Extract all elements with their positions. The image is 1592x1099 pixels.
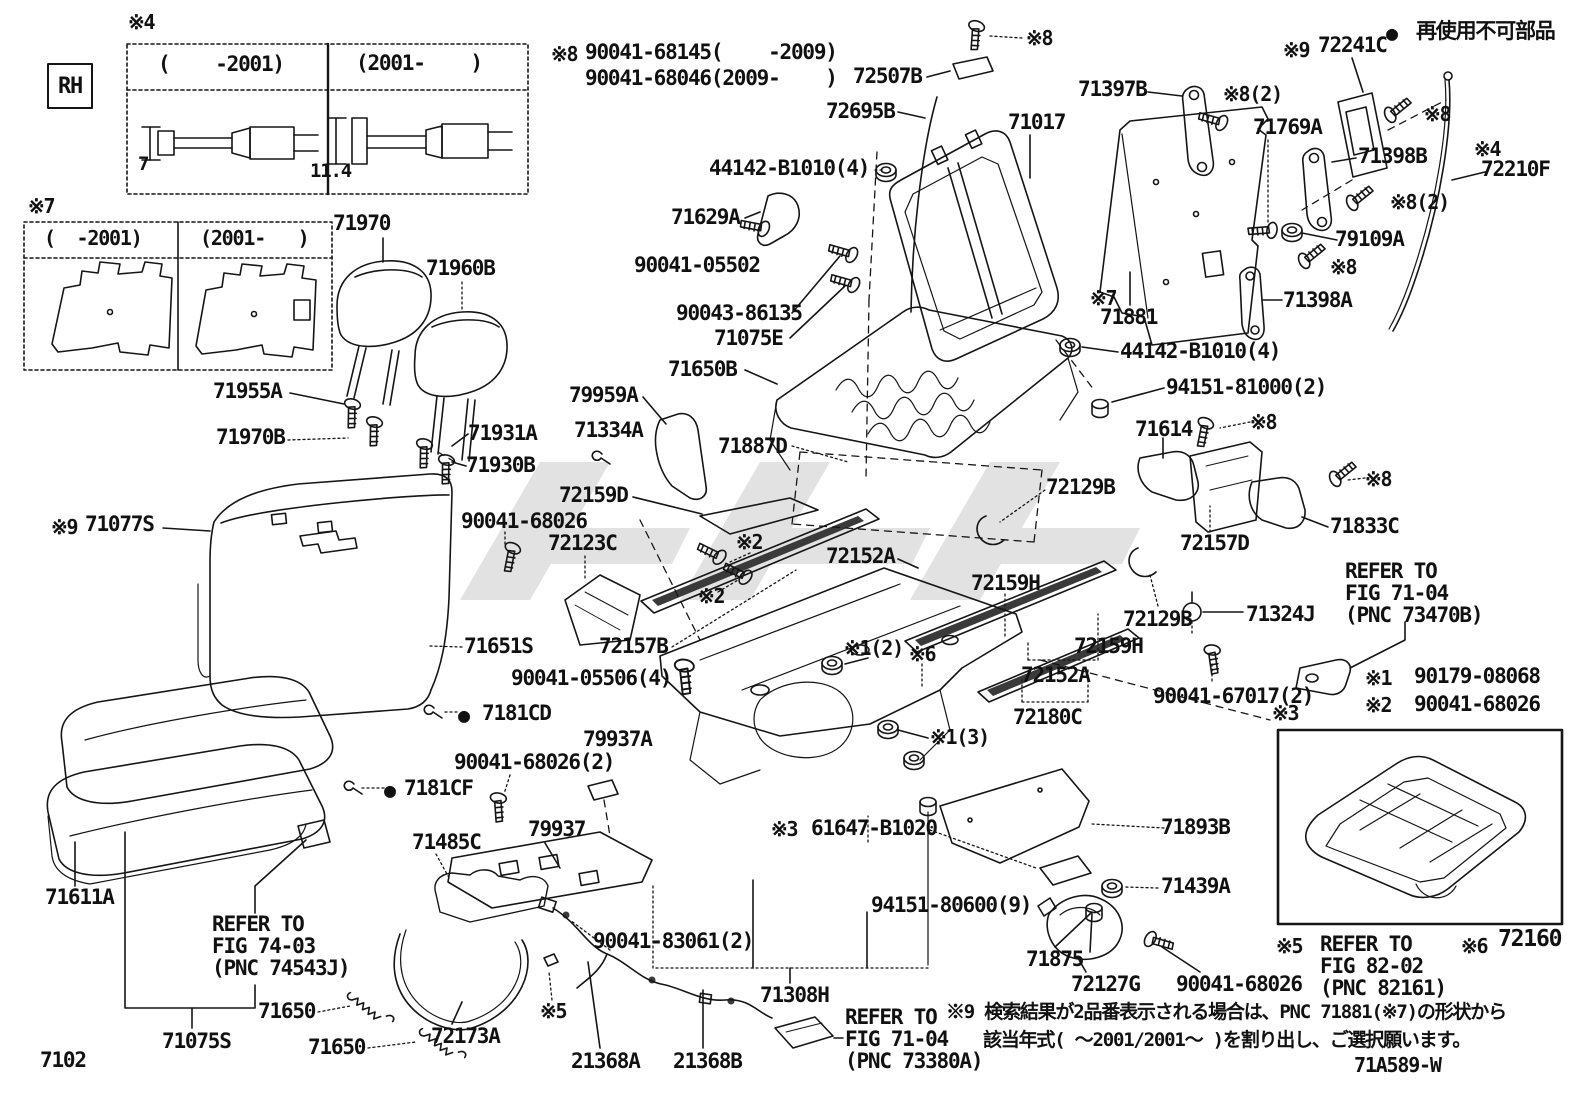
part-label: 90041-83061(2) (593, 931, 753, 952)
part-label: 71887D (718, 436, 787, 457)
part-label: 90041-68026 (1414, 694, 1540, 715)
part-label: RH (58, 76, 82, 98)
part-label: 71334A (574, 420, 643, 441)
part-label: 44142-B1010(4) (709, 158, 869, 179)
part-label: 71439A (1161, 876, 1230, 897)
part-label: ※5 (540, 1001, 566, 1021)
part-label: 71485C (412, 832, 481, 853)
part-label: 79937 (528, 819, 585, 840)
part-label: REFER TO (1345, 561, 1437, 582)
part-label: 71611A (45, 887, 114, 908)
part-label: ● (1386, 23, 1397, 43)
part-label: 71A589-W (1354, 1055, 1441, 1075)
part-label: 72241C (1318, 35, 1387, 56)
part-label: 71650 (308, 1037, 365, 1058)
part-label: 71930B (466, 455, 535, 476)
part-label: FIG 82-02 (1320, 956, 1423, 977)
part-label: ※8 (1424, 104, 1450, 124)
part-label: ※8 (1250, 412, 1276, 432)
part-label: ※6 (909, 644, 935, 664)
part-label: 90041-68026 (1176, 974, 1302, 995)
part-label: 21368B (673, 1051, 742, 1072)
part-label: 79109A (1335, 229, 1404, 250)
part-label: 7102 (40, 1050, 86, 1071)
part-label: 71324J (1246, 604, 1315, 625)
part-label: 71955A (213, 381, 282, 402)
part-label: 7181CF (404, 778, 473, 799)
part-label: ※2 (736, 532, 762, 552)
part-label: (PNC 74543J) (212, 958, 349, 979)
part-label: ● (384, 780, 395, 800)
part-label: ※6 (1461, 936, 1487, 956)
part-label: (PNC 73470B) (1345, 605, 1482, 626)
part-label: (PNC 82161) (1320, 978, 1446, 999)
part-label: 72507B (853, 66, 922, 87)
part-label: 71077S (85, 514, 154, 535)
part-label: 71769A (1253, 117, 1322, 138)
part-label: ※8 (551, 44, 577, 64)
part-label: ※8 (1365, 469, 1391, 489)
part-label: 72127G (1071, 974, 1140, 995)
part-label: ※5 (1276, 936, 1302, 956)
part-label: REFER TO (212, 914, 304, 935)
part-label: (2001- ) (200, 228, 308, 248)
part-label: 90041-68026(2) (454, 752, 614, 773)
part-label: 再使用不可部品 (1416, 21, 1555, 42)
part-label: 61647-B1020 (811, 818, 937, 839)
part-label: ( -2001) (158, 54, 284, 75)
part-label: 71881 (1100, 307, 1157, 328)
part-label: 72157B (599, 636, 668, 657)
part-label: 71893B (1161, 817, 1230, 838)
part-label: 71970B (216, 427, 285, 448)
part-label: (2001- ) (356, 53, 482, 74)
part-label: 71960B (426, 258, 495, 279)
part-label: 90179-08068 (1414, 666, 1540, 687)
part-label: REFER TO (1320, 934, 1412, 955)
part-label: ※1 (1365, 668, 1391, 688)
part-label: 71651S (464, 636, 533, 657)
part-label: REFER TO (845, 1007, 937, 1028)
part-label: ( -2001) (44, 228, 142, 248)
part-label: 72152A (826, 546, 895, 567)
part-label: 72180C (1013, 707, 1082, 728)
part-label: 71017 (1008, 112, 1065, 133)
part-label: 90043-86135 (676, 303, 802, 324)
part-label: 72160 (1498, 928, 1561, 951)
part-label: ※3 (771, 819, 797, 839)
part-label: 該当年式( ～2001/2001～ )を割り出し、ご選択願います。 (983, 1031, 1470, 1050)
part-label: 71833C (1330, 516, 1399, 537)
part-label: 71614 (1135, 419, 1192, 440)
part-label: 72129B (1123, 609, 1192, 630)
part-label: 71398B (1358, 146, 1427, 167)
part-label: 7 (138, 155, 148, 174)
part-label: 71970 (333, 213, 390, 234)
part-label: 21368A (571, 1051, 640, 1072)
part-label: 79959A (569, 385, 638, 406)
part-label: 79937A (583, 729, 652, 750)
part-label: ※7 (28, 196, 54, 216)
part-label: 7181CD (482, 703, 551, 724)
part-label: 71398A (1283, 290, 1352, 311)
part-label: ※8(2) (1223, 84, 1282, 104)
part-label: 90041-05506(4) (511, 668, 671, 689)
part-label: ※9 (51, 517, 77, 537)
part-label: ※8 (1026, 28, 1052, 48)
part-labels-layer: ※4RH( -2001)(2001- )711.4※7( -2001)(2001… (0, 0, 1592, 1099)
part-label: 90041-05502 (634, 255, 760, 276)
part-label: (PNC 73380A) (845, 1051, 982, 1072)
part-label: 72129B (1046, 477, 1115, 498)
part-label: FIG 74-03 (212, 936, 315, 957)
part-label: 90041-68026 (461, 511, 587, 532)
part-label: 71308H (760, 985, 829, 1006)
part-label: 71397B (1078, 79, 1147, 100)
part-label: 71629A (671, 207, 740, 228)
part-label: 72159H (971, 573, 1040, 594)
part-label: ※4 (1474, 139, 1500, 159)
part-label: 71875 (1026, 949, 1083, 970)
part-label: 71931A (468, 423, 537, 444)
part-label: ※3 (1272, 703, 1298, 723)
part-label: 71650B (668, 359, 737, 380)
part-label: 90041-68046(2009- ) (585, 68, 837, 89)
part-label: 72157D (1180, 533, 1249, 554)
part-label: 90041-68145( -2009) (585, 42, 837, 63)
part-label: 72210F (1481, 159, 1550, 180)
part-label: ※4 (128, 12, 154, 32)
part-label: 72173A (431, 1026, 500, 1047)
part-label: 71075E (714, 328, 783, 349)
part-label: 72159D (559, 485, 628, 506)
part-label: FIG 71-04 (845, 1029, 948, 1050)
parts-diagram-canvas: ※4RH( -2001)(2001- )711.4※7( -2001)(2001… (0, 0, 1592, 1099)
part-label: 94151-81000(2) (1166, 377, 1326, 398)
part-label: FIG 71-04 (1345, 583, 1448, 604)
part-label: ※1(2) (844, 638, 903, 658)
part-label: 11.4 (310, 162, 351, 181)
part-label: ※2 (698, 586, 724, 606)
part-label: ※1(3) (930, 727, 989, 747)
part-label: 71650 (258, 1001, 315, 1022)
part-label: ※9 (1283, 40, 1309, 60)
part-label: 94151-80600(9) (871, 895, 1031, 916)
part-label: ※8(2) (1390, 192, 1449, 212)
part-label: 72123C (548, 533, 617, 554)
part-label: ※9 検索結果が2品番表示される場合は、PNC 71881(※7)の形状から (946, 1003, 1506, 1022)
part-label: ※8 (1330, 257, 1356, 277)
part-label: ※2 (1365, 695, 1391, 715)
part-label: 72695B (826, 101, 895, 122)
part-label: 44142-B1010(4) (1120, 341, 1280, 362)
part-label: ● (458, 705, 469, 725)
part-label: 72152A (1021, 665, 1090, 686)
part-label: 71075S (162, 1031, 231, 1052)
part-label: 72159H (1074, 636, 1143, 657)
